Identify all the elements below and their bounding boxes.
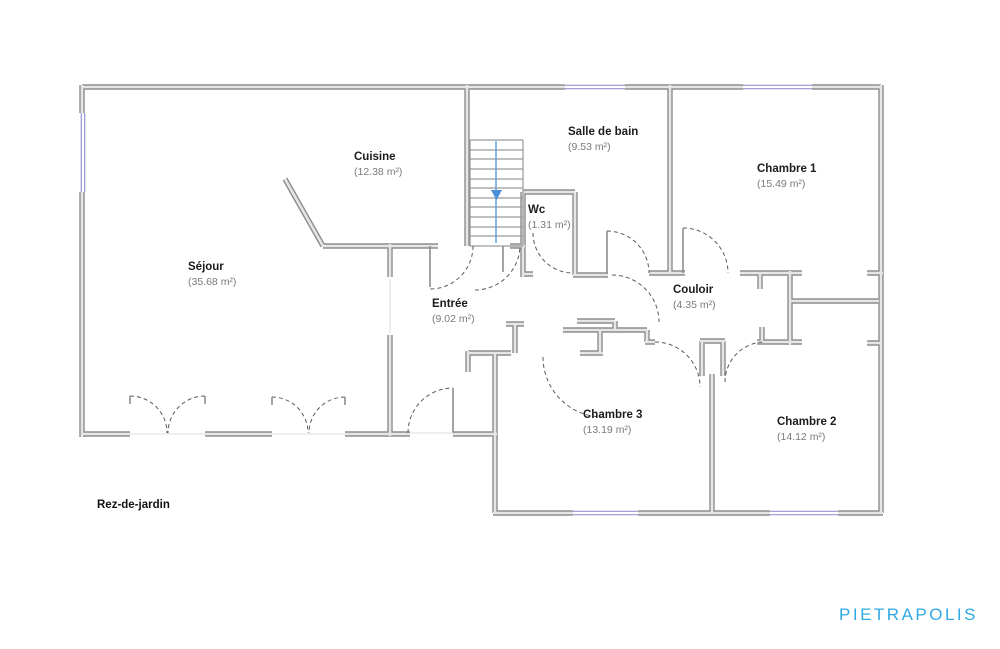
room-label-salle-de-bain: Salle de bain (9.53 m²): [568, 126, 638, 154]
room-area: (12.38 m²): [354, 166, 402, 179]
room-area: (9.53 m²): [568, 141, 638, 154]
room-name: Chambre 1: [757, 163, 816, 176]
room-name: Entrée: [432, 298, 475, 311]
door-arc-cuisine: [430, 246, 473, 289]
room-area: (13.19 m²): [583, 424, 642, 437]
room-label-sejour: Séjour (35.68 m²): [188, 261, 236, 289]
walls: [82, 85, 883, 513]
door-arc-sejour-double1-right: [168, 396, 205, 433]
door-arc-chambre3-entree: [543, 357, 603, 417]
door-arc-sejour-double2-right: [309, 397, 345, 433]
room-area: (1.31 m²): [528, 219, 571, 232]
door-arc-stairhall: [475, 246, 520, 290]
door-arc-wc: [533, 233, 573, 273]
room-label-couloir: Couloir (4.35 m²): [673, 284, 716, 312]
room-name: Salle de bain: [568, 126, 638, 139]
door-arc-couloir: [612, 275, 659, 322]
brand-logo: PIETRAPOLIS: [839, 605, 978, 625]
room-area: (4.35 m²): [673, 299, 716, 312]
room-name: Cuisine: [354, 151, 402, 164]
room-label-entree: Entrée (9.02 m²): [432, 298, 475, 326]
room-area: (9.02 m²): [432, 313, 475, 326]
door-arc-chambre3: [655, 342, 700, 387]
room-label-chambre3: Chambre 3 (13.19 m²): [583, 409, 642, 437]
door-arc-chambre2: [725, 342, 765, 382]
room-label-cuisine: Cuisine (12.38 m²): [354, 151, 402, 179]
room-area: (15.49 m²): [757, 178, 816, 191]
floor-level-label: Rez-de-jardin: [97, 499, 170, 511]
door-arc-salle-de-bain: [607, 231, 649, 273]
room-area: (14.12 m²): [777, 431, 836, 444]
room-name: Wc: [528, 204, 571, 217]
door-arc-sejour-single: [408, 388, 453, 433]
room-label-chambre1: Chambre 1 (15.49 m²): [757, 163, 816, 191]
room-name: Séjour: [188, 261, 236, 274]
door-arc-sejour-double2-left: [272, 397, 308, 433]
room-name: Couloir: [673, 284, 716, 297]
room-label-chambre2: Chambre 2 (14.12 m²): [777, 416, 836, 444]
room-label-wc: Wc (1.31 m²): [528, 204, 571, 232]
door-arc-sejour-double1-left: [130, 396, 167, 433]
room-area: (35.68 m²): [188, 276, 236, 289]
room-name: Chambre 2: [777, 416, 836, 429]
staircase: [470, 140, 523, 246]
floorplan-canvas: Séjour (35.68 m²) Cuisine (12.38 m²) Sal…: [0, 0, 1000, 649]
threshold-lines: [130, 279, 453, 434]
room-name: Chambre 3: [583, 409, 642, 422]
door-arc-chambre1: [683, 228, 728, 273]
floorplan-drawing: [0, 0, 1000, 649]
